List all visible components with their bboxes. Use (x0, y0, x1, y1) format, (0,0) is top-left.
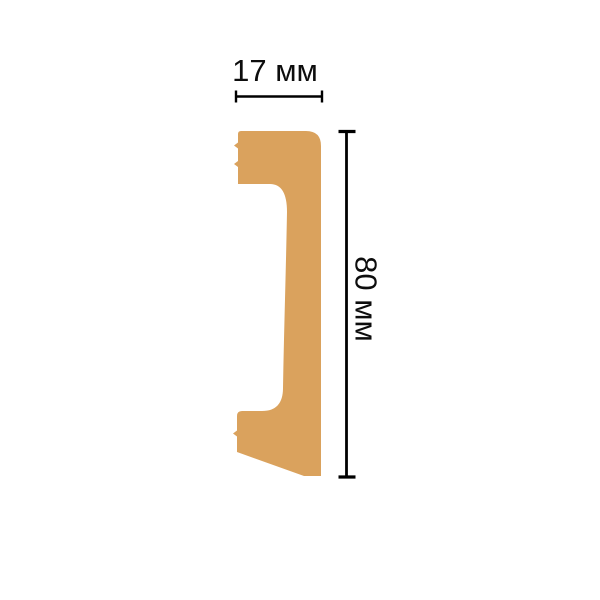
width-dimension-line (236, 91, 322, 103)
molding-profile-shape (233, 131, 321, 476)
height-dimension-label: 80 мм (351, 256, 382, 342)
width-dimension-label: 17 мм (175, 55, 375, 86)
profile-diagram: 17 мм 80 мм (0, 0, 600, 600)
diagram-svg (0, 0, 600, 600)
